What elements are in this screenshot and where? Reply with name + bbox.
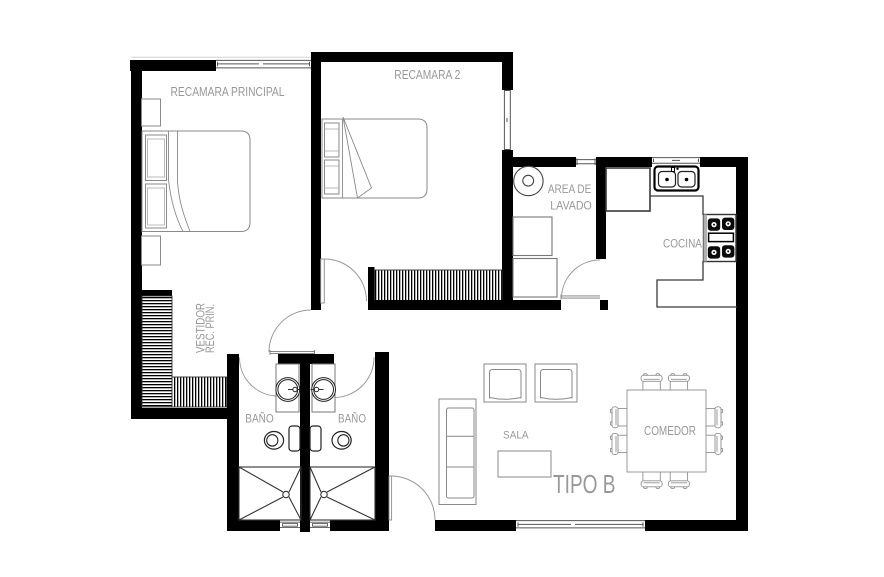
svg-text:AREA DE: AREA DE [548,182,592,196]
svg-text:BAÑO: BAÑO [338,413,366,426]
svg-text:BAÑO: BAÑO [245,413,274,426]
svg-text:LAVADO: LAVADO [550,199,592,213]
svg-text:COMEDOR: COMEDOR [644,424,696,438]
svg-text:SALA: SALA [503,430,529,442]
svg-text:COCINA: COCINA [663,239,702,251]
svg-text:RECAMARA PRINCIPAL: RECAMARA PRINCIPAL [171,85,285,99]
svg-text:TIPO B: TIPO B [553,469,616,499]
svg-text:REC. PRIN.: REC. PRIN. [205,304,217,353]
svg-text:RECAMARA 2: RECAMARA 2 [394,68,460,82]
